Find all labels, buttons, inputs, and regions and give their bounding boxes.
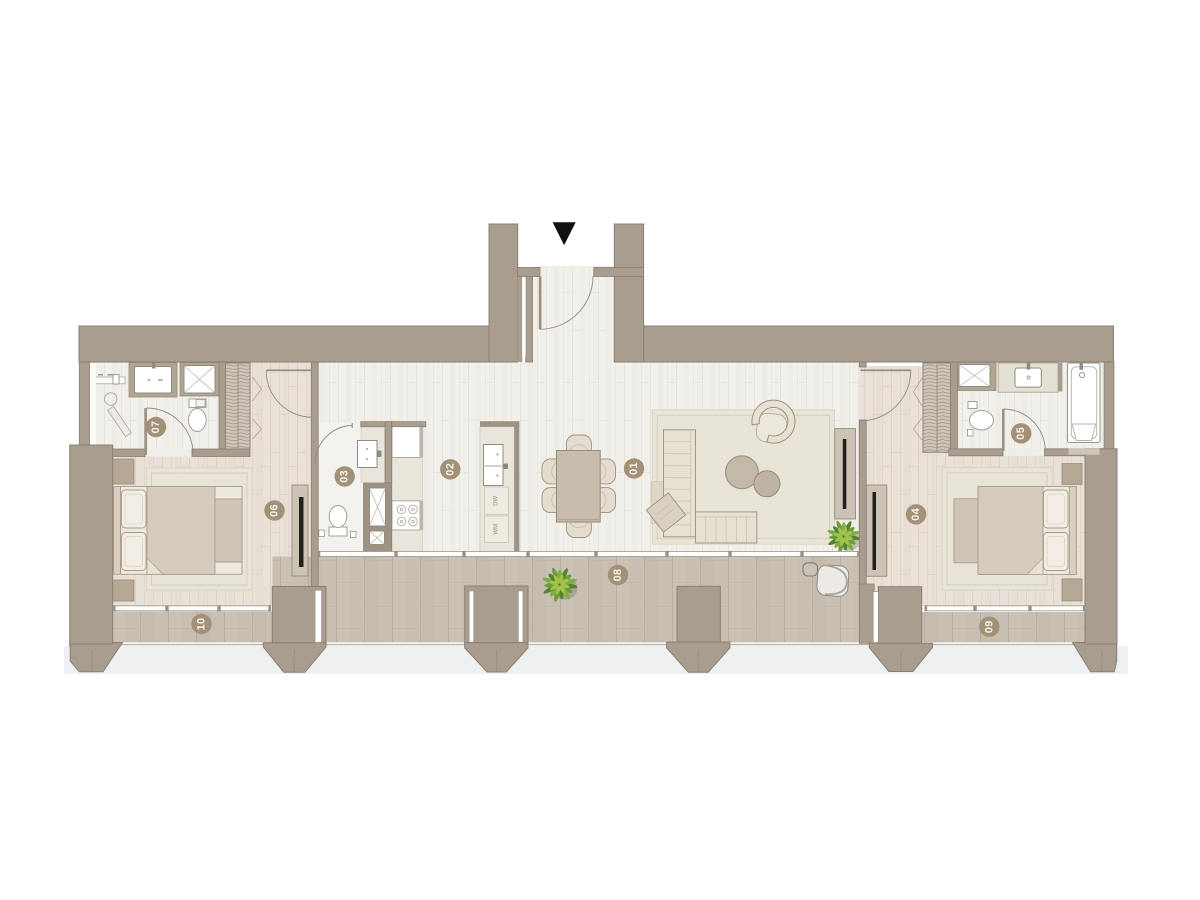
svg-text:05: 05 (1015, 427, 1027, 440)
svg-text:10: 10 (196, 618, 208, 631)
svg-text:03: 03 (339, 470, 351, 483)
svg-text:DW: DW (494, 495, 500, 505)
svg-text:06: 06 (269, 504, 281, 517)
svg-text:02: 02 (444, 463, 456, 476)
svg-text:01: 01 (628, 462, 640, 475)
svg-text:04: 04 (910, 508, 922, 521)
svg-text:WM: WM (494, 524, 500, 535)
svg-text:09: 09 (983, 620, 995, 633)
svg-text:08: 08 (612, 569, 624, 582)
svg-text:07: 07 (150, 421, 162, 434)
